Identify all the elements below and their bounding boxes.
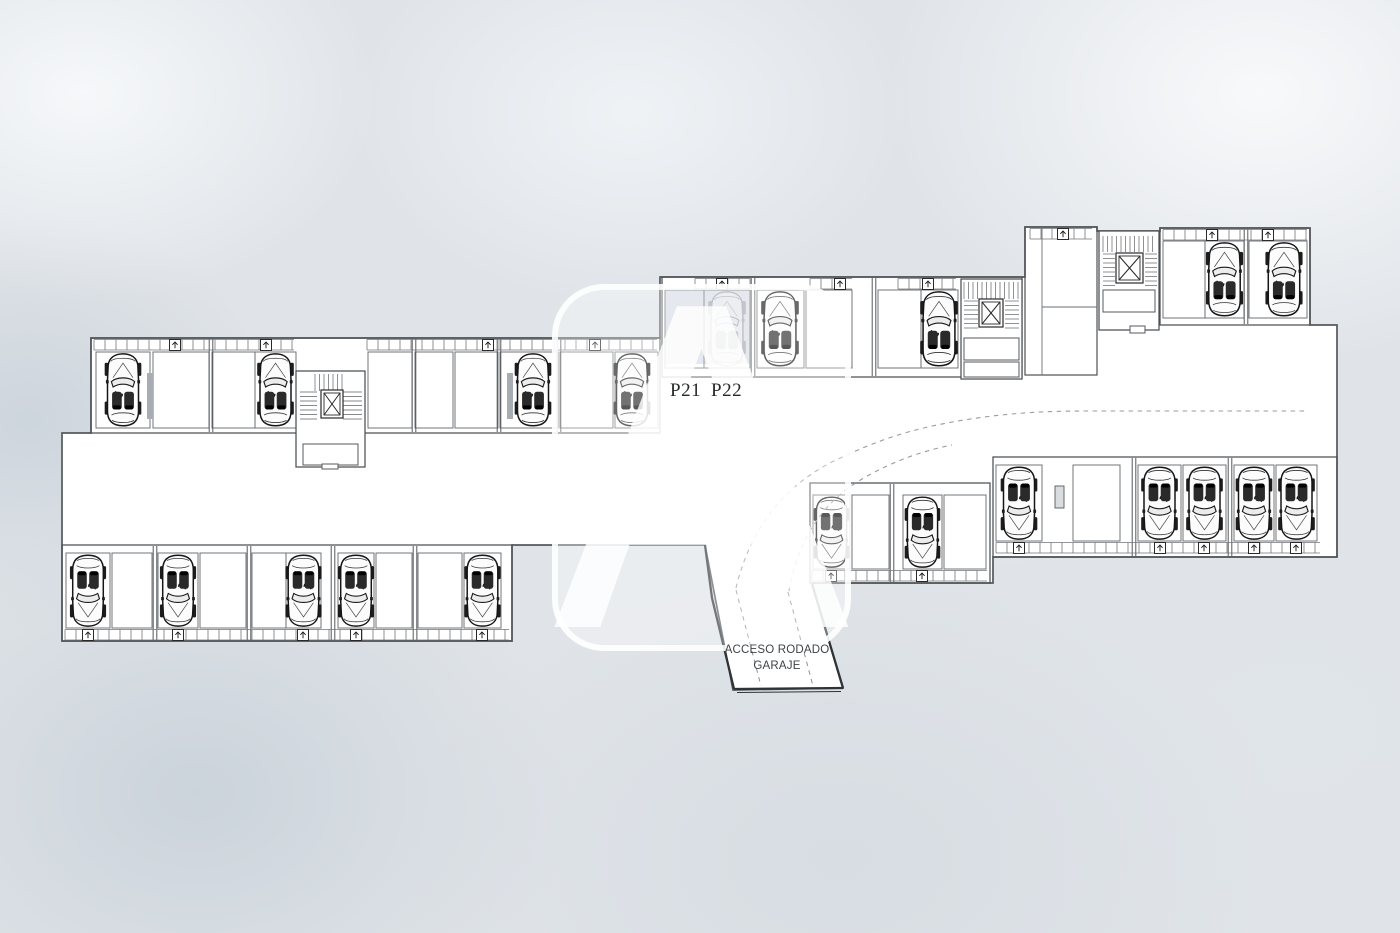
car-icon bbox=[1141, 467, 1178, 539]
car-icon bbox=[814, 497, 850, 567]
stairwell-right bbox=[1099, 231, 1159, 333]
pillar bbox=[507, 373, 513, 419]
ramp-label-line2: GARAJE bbox=[703, 658, 851, 674]
car-icon bbox=[1236, 467, 1273, 539]
parking-spot-label-p21: P21 bbox=[670, 380, 701, 402]
car-icon bbox=[285, 555, 321, 626]
car-icon bbox=[708, 292, 746, 366]
stairwell-left bbox=[296, 371, 365, 469]
stairwell-middle bbox=[961, 279, 1022, 379]
car-icon bbox=[1265, 243, 1302, 316]
elevator-icon bbox=[321, 390, 343, 418]
car-icon bbox=[515, 354, 552, 426]
elevator-icon bbox=[979, 299, 1003, 327]
parking-spot-label-p22: P22 bbox=[711, 380, 742, 402]
garage-floor-plan: A P21 P22 ACCESO RODADO GARAJE bbox=[0, 0, 1400, 933]
car-icon bbox=[105, 354, 142, 426]
car-icon bbox=[614, 354, 651, 426]
floorplan-svg bbox=[0, 0, 1400, 933]
elevator-icon bbox=[1116, 253, 1143, 283]
car-icon bbox=[905, 497, 941, 567]
car-icon bbox=[257, 354, 294, 426]
car-icon bbox=[464, 555, 500, 626]
ramp-label: ACCESO RODADO GARAJE bbox=[703, 642, 851, 674]
door bbox=[1055, 486, 1064, 508]
car-icon bbox=[1206, 243, 1243, 316]
car-icon bbox=[160, 555, 196, 626]
pillar bbox=[147, 373, 153, 419]
car-icon bbox=[761, 292, 799, 366]
ramp-label-line1: ACCESO RODADO bbox=[703, 642, 851, 658]
car-icon bbox=[1186, 467, 1223, 539]
car-icon bbox=[920, 292, 958, 366]
car-icon bbox=[1278, 467, 1315, 539]
car-icon bbox=[70, 555, 106, 626]
car-icon bbox=[1001, 467, 1038, 539]
car-icon bbox=[338, 555, 374, 626]
